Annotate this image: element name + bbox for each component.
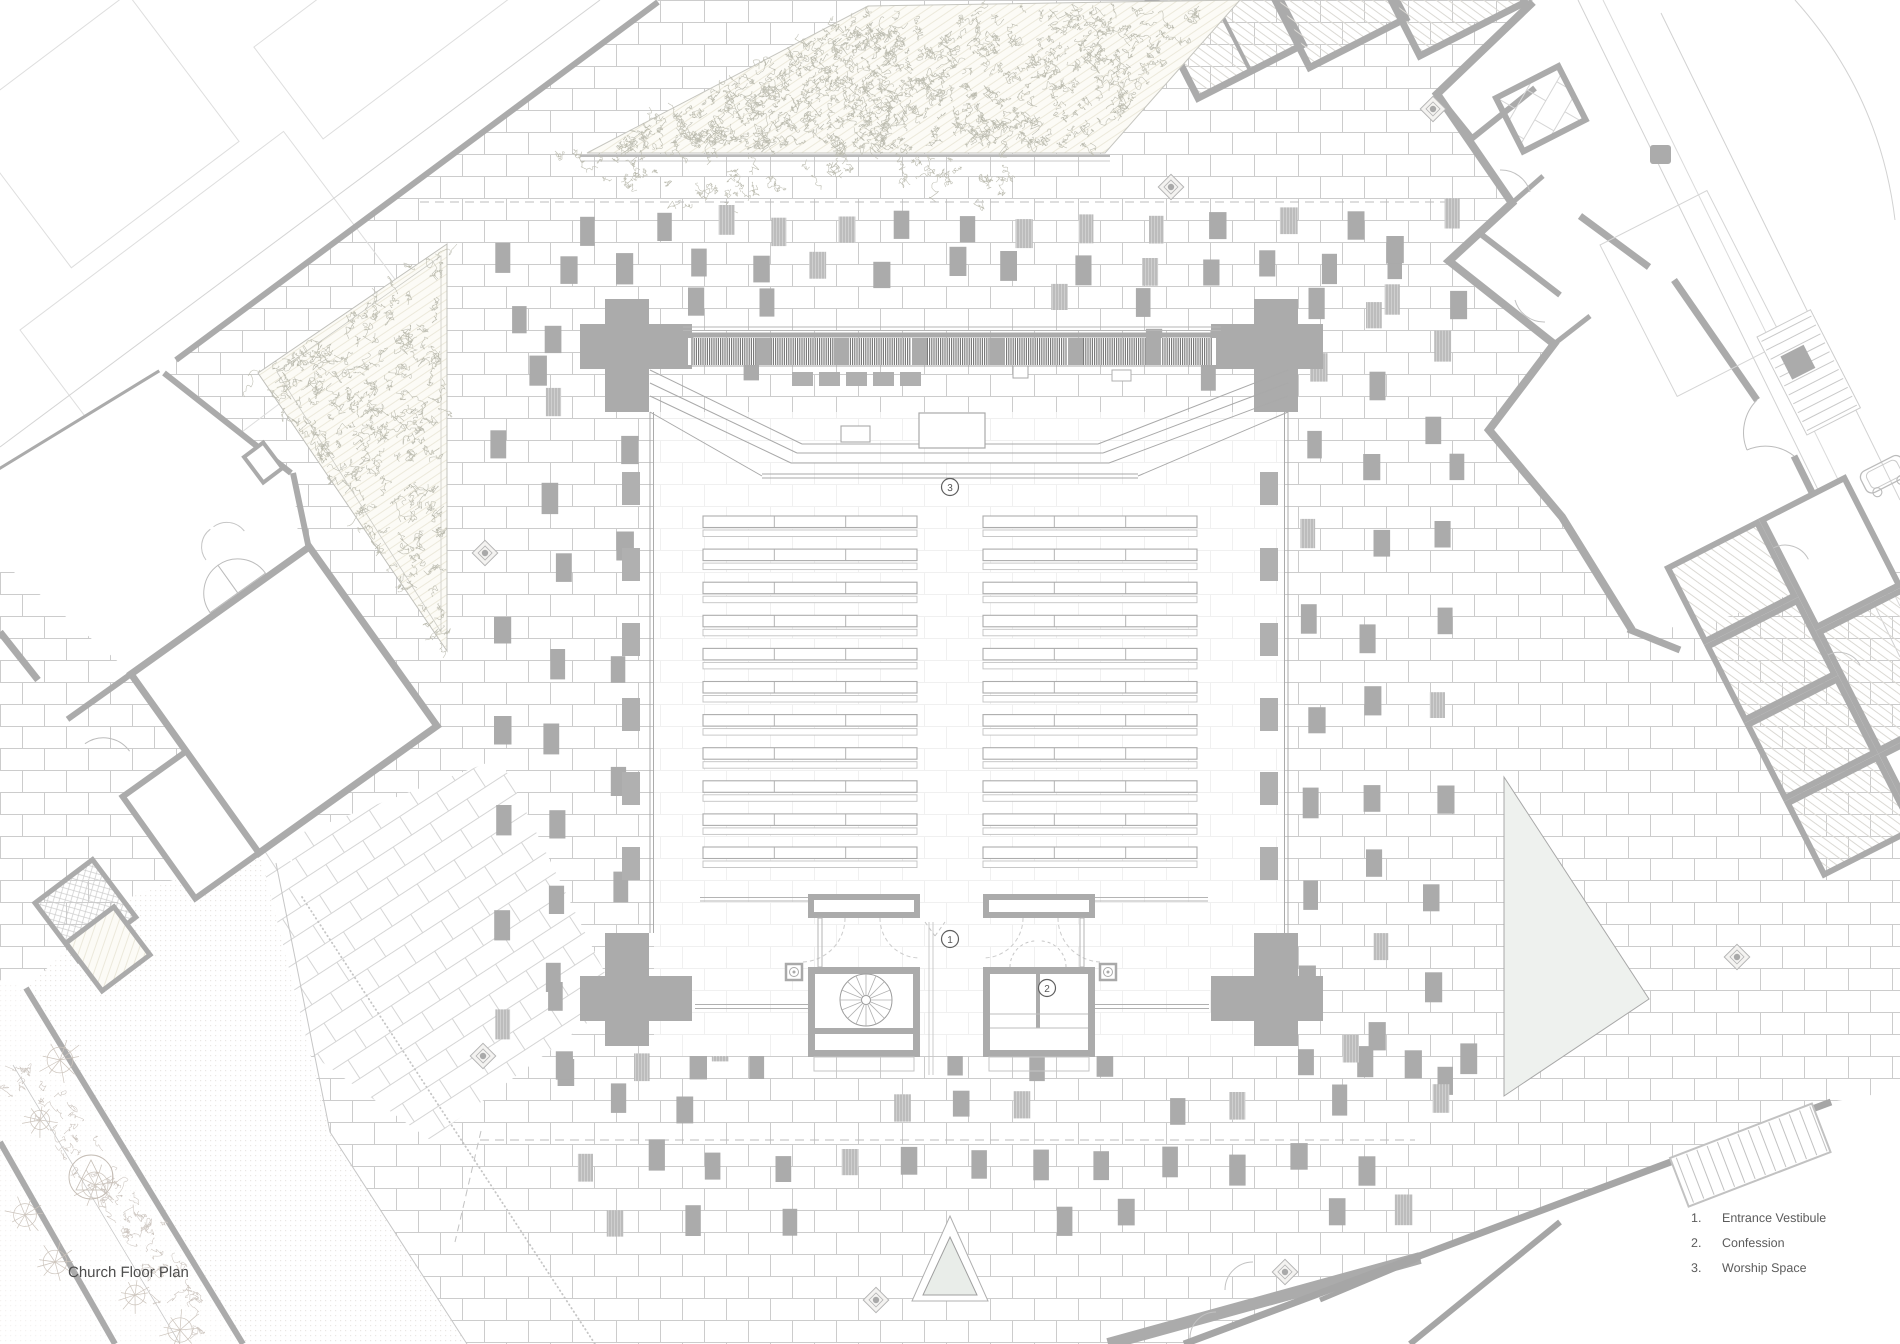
svg-text:Confession: Confession (1722, 1236, 1785, 1250)
svg-text:1: 1 (947, 935, 953, 946)
svg-text:2: 2 (1044, 984, 1050, 995)
svg-text:1.: 1. (1691, 1211, 1701, 1225)
svg-text:3.: 3. (1691, 1261, 1701, 1275)
svg-text:2.: 2. (1691, 1236, 1701, 1250)
svg-text:Worship Space: Worship Space (1722, 1261, 1807, 1275)
svg-text:3: 3 (947, 483, 953, 494)
svg-text:Entrance Vestibule: Entrance Vestibule (1722, 1211, 1826, 1225)
svg-text:Church Floor Plan: Church Floor Plan (68, 1264, 189, 1281)
